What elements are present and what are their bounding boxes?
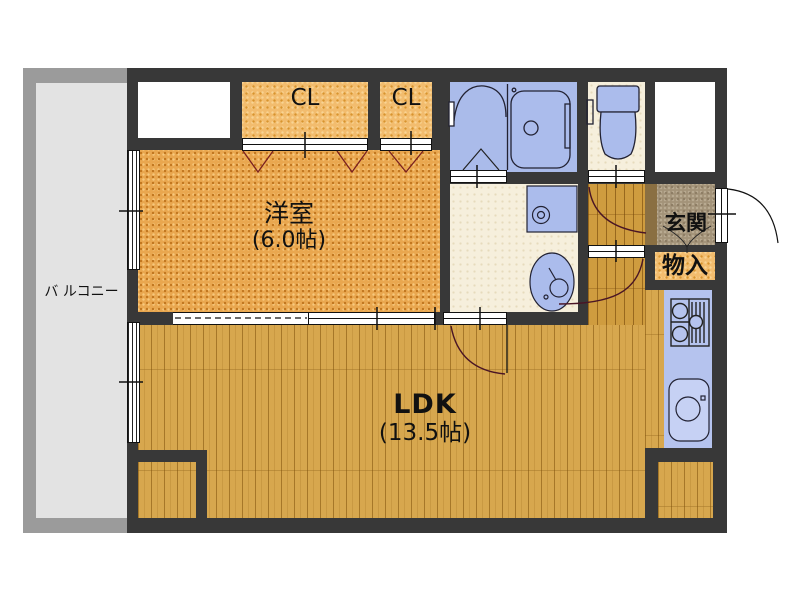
western-room-label: 洋室 <box>138 200 440 228</box>
balcony-label: バ ルコニー <box>36 285 127 300</box>
washroom-door <box>443 312 507 325</box>
genkan-step <box>645 184 657 245</box>
alcove-bottom-right <box>658 462 713 518</box>
floor-plan: CL CL 洋室 (6.0帖) LDK (13.5帖) 玄関 物入 バ ルコニー <box>0 0 800 600</box>
storage-label: 物入 <box>655 254 715 279</box>
toilet-door <box>588 170 645 183</box>
closet-1-door <box>242 138 368 151</box>
bathroom-door <box>450 170 507 183</box>
ldk-label: LDK <box>138 390 712 420</box>
washroom <box>450 184 578 312</box>
void-box <box>655 82 715 172</box>
alcove-wall-right <box>196 450 207 518</box>
closet-1-label: CL <box>242 86 368 111</box>
genkan-label: 玄関 <box>657 212 715 235</box>
western-room-size: (6.0帖) <box>138 229 440 253</box>
entrance-door <box>715 188 728 243</box>
balcony <box>36 83 127 518</box>
hallway <box>588 184 645 245</box>
closet-2-door <box>380 138 432 151</box>
closet-2-label: CL <box>380 86 432 111</box>
entrance-door-arc <box>728 189 778 243</box>
bathroom <box>450 82 577 172</box>
toilet-room <box>588 82 645 172</box>
ldk-size: (13.5帖) <box>138 421 712 446</box>
ldk-corridor <box>588 258 645 325</box>
pipe-space-box <box>138 82 230 138</box>
western-ldk-sliding-door <box>308 312 435 325</box>
hall-door <box>588 245 645 258</box>
